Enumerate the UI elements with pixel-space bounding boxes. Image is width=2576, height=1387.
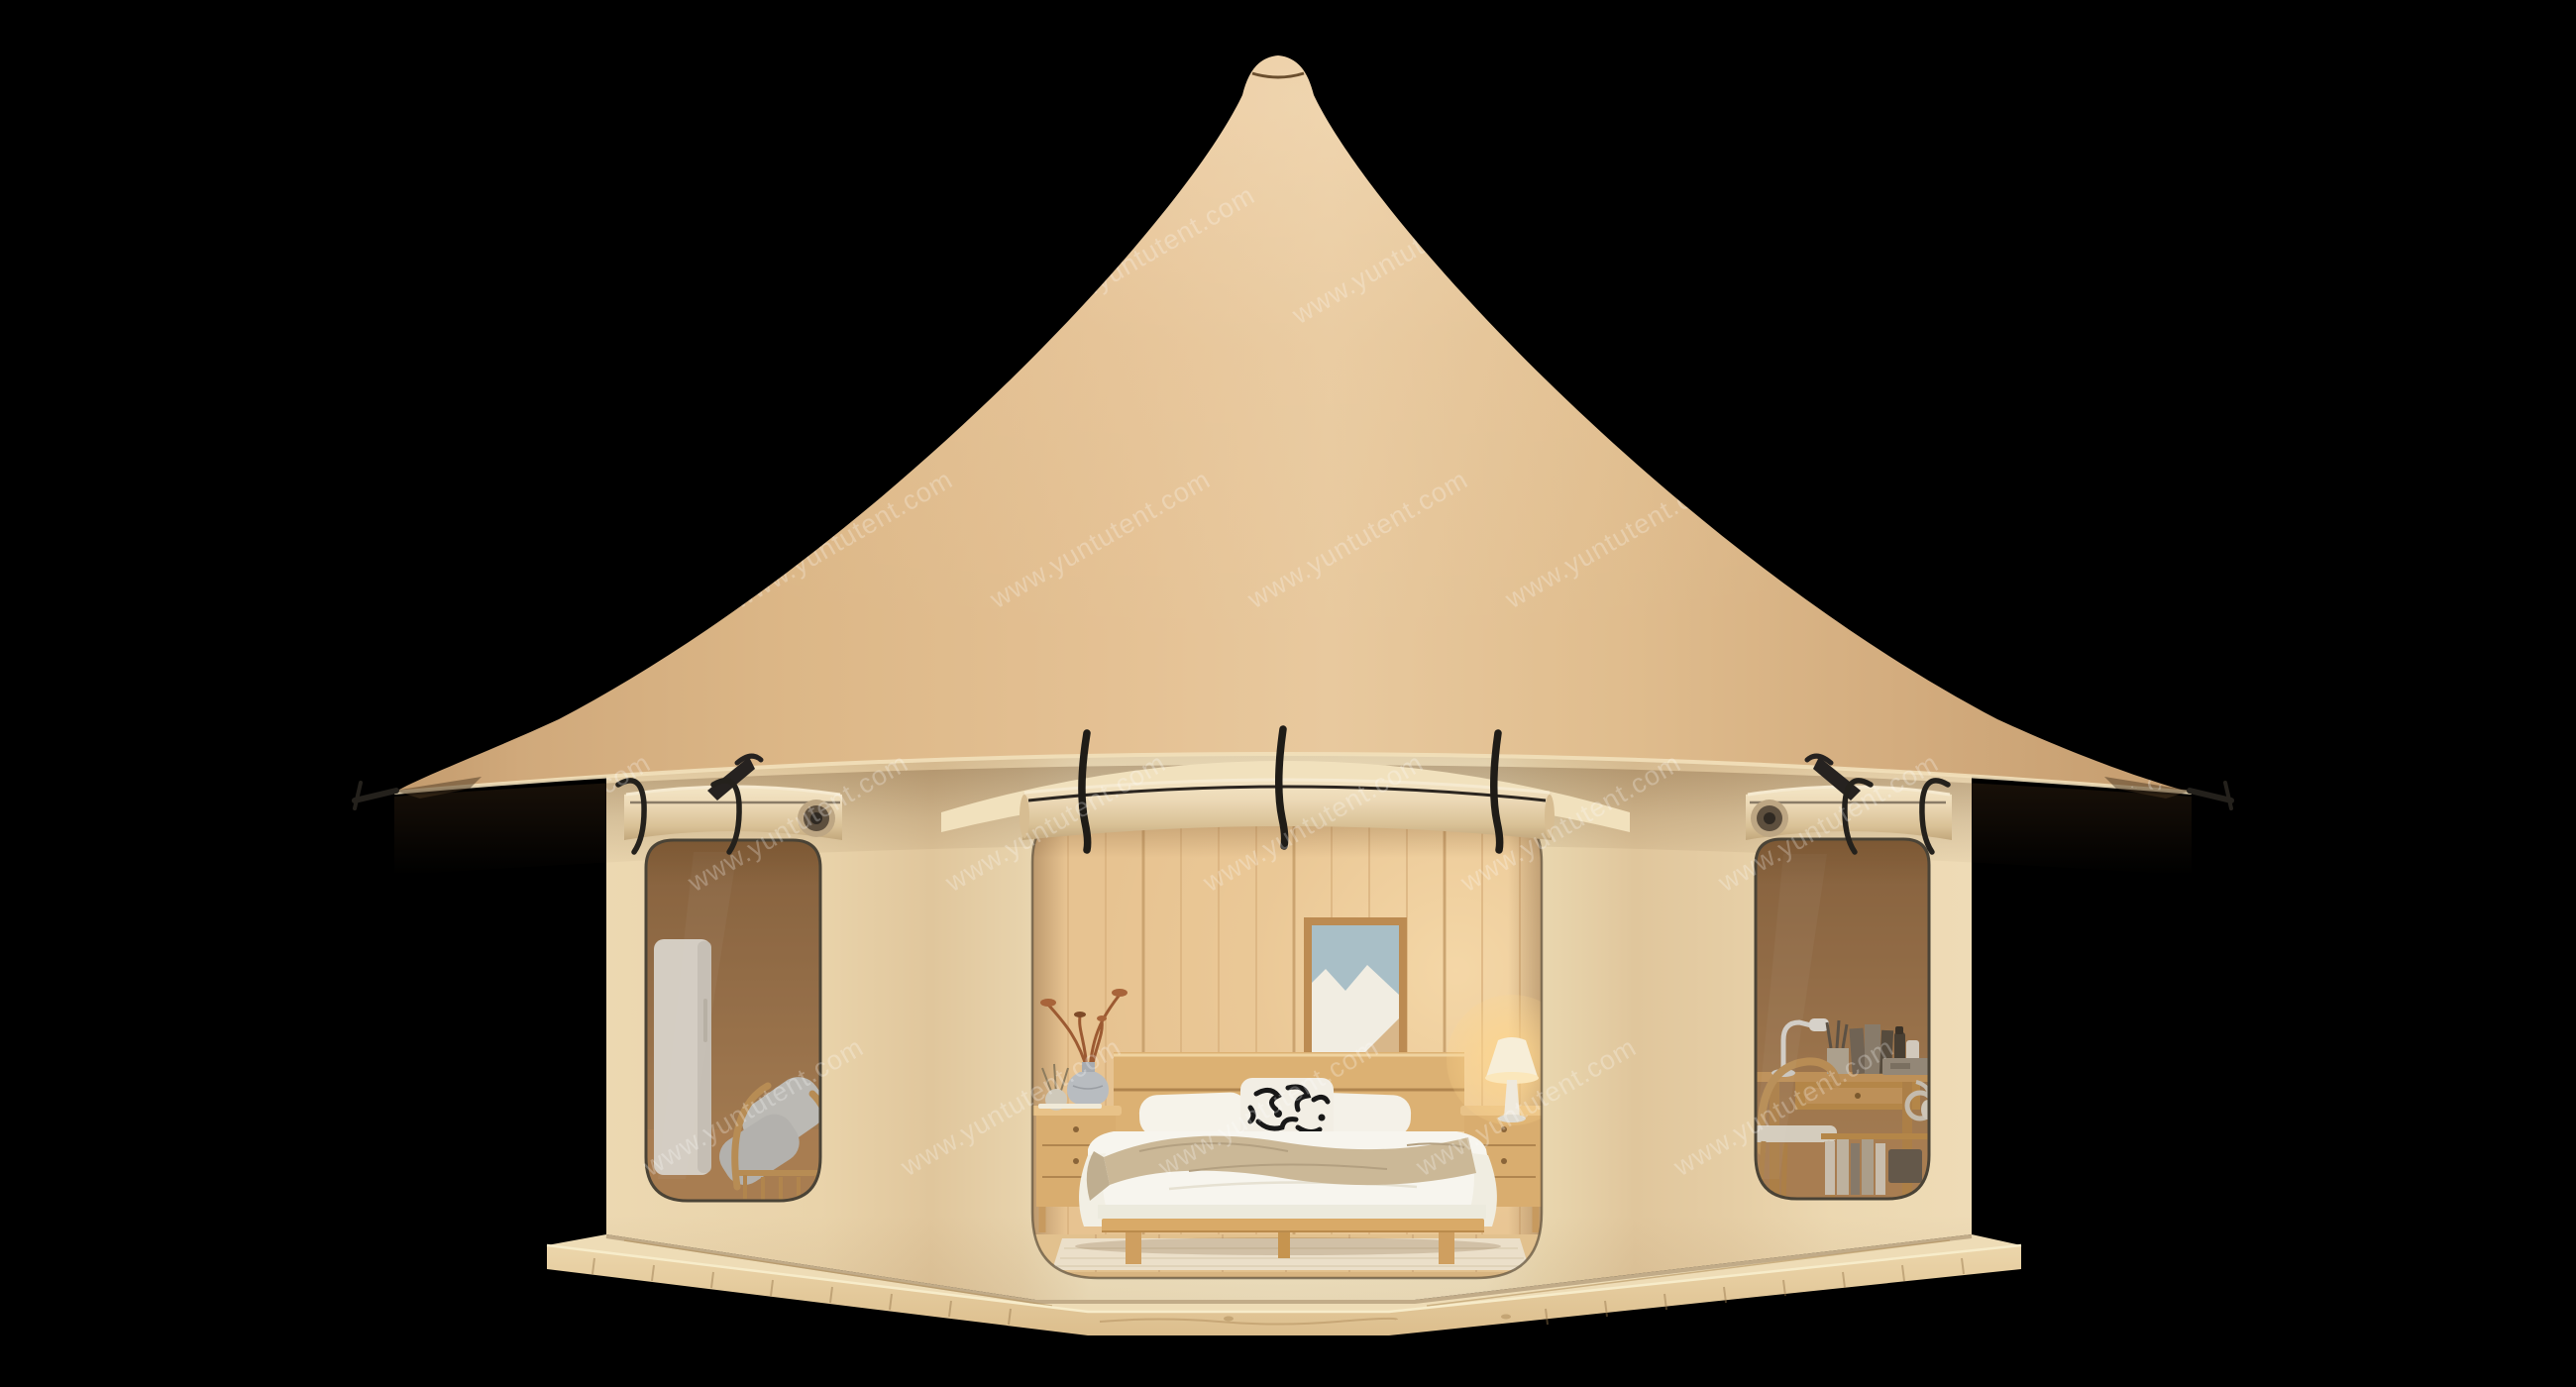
- glass-tint: [1756, 839, 1929, 1200]
- product-photo-canvas: www.yuntutent.com www.yuntutent.com www.…: [0, 0, 2576, 1387]
- glamping-tent-render: www.yuntutent.com www.yuntutent.com www.…: [0, 0, 2576, 1387]
- door-left-shadow: [1032, 810, 1066, 1278]
- mattress-side: [1098, 1205, 1486, 1219]
